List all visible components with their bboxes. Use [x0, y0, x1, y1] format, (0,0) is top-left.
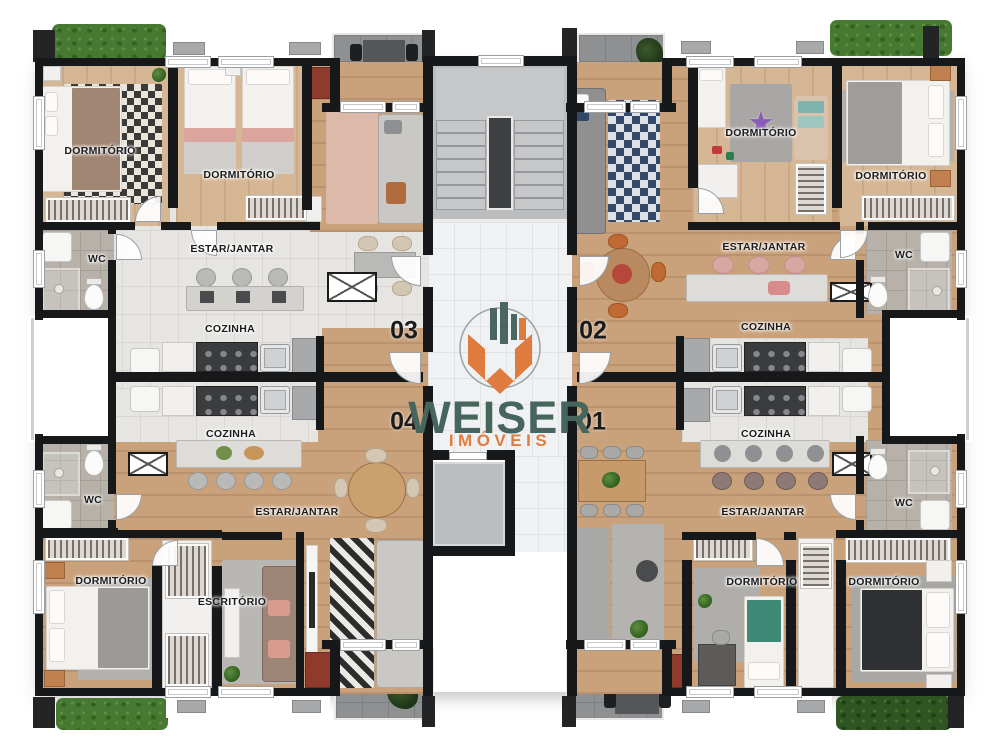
blanket: [862, 590, 922, 670]
window: [630, 639, 660, 651]
window: [392, 639, 420, 651]
cushion: [384, 120, 402, 134]
window: [584, 639, 626, 651]
room-label: WC: [84, 494, 102, 506]
kitchen-sink: [260, 386, 290, 414]
window: [478, 55, 524, 67]
nightstand: [44, 670, 65, 687]
wall: [882, 318, 890, 436]
window: [955, 250, 967, 288]
room-label: DORMITÓRIO: [848, 576, 919, 588]
blanket: [72, 88, 120, 190]
chair: [358, 236, 378, 251]
fridge: [682, 388, 710, 422]
stove: [196, 342, 258, 372]
pillow: [926, 632, 950, 668]
kitchen-island: [686, 274, 828, 302]
room-label: ESTAR/JANTAR: [722, 241, 805, 253]
wall: [423, 58, 433, 255]
stove: [196, 386, 258, 416]
stool: [188, 472, 208, 490]
red-cabinet: [305, 652, 333, 688]
laundry-sink: [842, 386, 872, 412]
unit-number-03: 03: [390, 317, 418, 346]
pillow: [926, 592, 950, 628]
window: [165, 686, 211, 698]
kitchen-cabinet: [162, 342, 194, 372]
room-label: DORMITÓRIO: [725, 127, 796, 139]
ac-unit: [796, 41, 824, 54]
wall: [302, 58, 312, 210]
wardrobe: [166, 634, 208, 686]
window: [584, 101, 626, 113]
chair: [603, 504, 621, 517]
wardrobe: [694, 538, 752, 560]
pillow: [928, 85, 944, 119]
toilet-tank: [86, 278, 102, 285]
ac-unit: [797, 700, 825, 713]
floor-plan: ★: [0, 0, 1000, 752]
kitchen-cabinet: [162, 386, 194, 416]
room-label: COZINHA: [205, 323, 255, 335]
window: [33, 470, 45, 508]
lobby-floor: [512, 456, 572, 552]
ac-unit: [681, 41, 711, 54]
window: [218, 686, 274, 698]
wall: [784, 532, 796, 540]
chair: [603, 446, 621, 459]
window: [955, 470, 967, 508]
stair-flight: [514, 120, 564, 210]
stool: [784, 256, 806, 274]
pillow: [45, 116, 58, 136]
stool: [748, 256, 770, 274]
railing: [31, 318, 34, 440]
room-label: ESCRITÓRIO: [198, 596, 266, 608]
wall: [108, 436, 116, 494]
cushion: [798, 116, 824, 128]
toilet-tank: [870, 448, 886, 455]
desk: [698, 644, 736, 686]
wardrobe: [46, 538, 128, 560]
shower-drain: [54, 468, 64, 478]
island-appliance: [200, 291, 214, 303]
window: [33, 560, 45, 614]
terrace-chair: [406, 44, 418, 61]
wall: [856, 436, 864, 494]
ac-unit: [173, 42, 205, 55]
room-label: WC: [895, 497, 913, 509]
wall: [688, 222, 840, 230]
stool: [776, 472, 796, 490]
room-label: WC: [88, 253, 106, 265]
chair: [608, 234, 628, 249]
window: [686, 56, 734, 68]
stool: [744, 472, 764, 490]
laundry-sink: [130, 348, 160, 374]
shower-drain: [930, 466, 940, 476]
toilet: [868, 282, 888, 308]
bathroom-sink: [920, 500, 950, 530]
sofa: [572, 528, 610, 650]
wall: [882, 310, 965, 318]
window: [955, 560, 967, 614]
chair: [626, 446, 644, 459]
nightstand: [44, 562, 65, 579]
wall: [868, 222, 962, 230]
stove: [744, 386, 806, 416]
duct-shaft: [327, 272, 377, 302]
toy: [712, 146, 722, 154]
stove: [744, 342, 806, 372]
stool: [712, 472, 732, 490]
wall: [316, 382, 324, 430]
room-label: ESTAR/JANTAR: [255, 506, 338, 518]
toilet: [84, 450, 104, 476]
room-label: DORMITÓRIO: [726, 576, 797, 588]
window: [754, 686, 802, 698]
kitchen-cabinet: [808, 386, 840, 416]
window: [340, 101, 386, 113]
kitchen-sink: [260, 344, 290, 372]
wall: [296, 532, 304, 694]
tv: [309, 572, 315, 628]
pillar: [422, 696, 435, 727]
chair: [365, 448, 387, 463]
wall: [35, 222, 135, 230]
pillar: [948, 694, 964, 728]
window: [955, 96, 967, 150]
duct-shaft: [830, 282, 872, 302]
chair: [392, 236, 412, 251]
cushion: [268, 600, 290, 616]
wardrobe: [846, 538, 950, 562]
room-label: DORMITÓRIO: [203, 169, 274, 181]
wall: [222, 532, 282, 540]
room-label: COZINHA: [206, 428, 256, 440]
window: [340, 639, 386, 651]
window: [33, 250, 45, 288]
wall: [688, 58, 698, 188]
blanket: [242, 128, 294, 142]
elevator-door: [449, 452, 487, 460]
chair: [712, 630, 730, 645]
window: [165, 56, 211, 68]
wall: [168, 58, 178, 208]
island-plate: [714, 445, 731, 462]
kitchen-island: [176, 440, 302, 468]
chair: [626, 504, 644, 517]
sofa: [376, 540, 428, 688]
stair-shaft: [487, 116, 513, 210]
bathroom-sink: [42, 232, 72, 262]
window: [33, 96, 45, 150]
ac-unit: [292, 700, 321, 713]
geometric-rug: [608, 100, 660, 222]
wall: [423, 287, 433, 352]
room-label: COZINHA: [741, 428, 791, 440]
cushion: [798, 101, 824, 113]
kitchen-sink: [712, 386, 742, 414]
ac-unit: [682, 700, 710, 713]
wall: [856, 260, 864, 318]
coffee-table: [636, 560, 658, 582]
wall: [836, 530, 962, 538]
blanket: [848, 82, 902, 164]
throw-blanket: [386, 182, 406, 204]
pillar: [562, 696, 576, 727]
shelf: [801, 544, 831, 588]
elevator-wall: [505, 450, 515, 556]
hedge: [52, 24, 166, 60]
island-appliance: [272, 291, 286, 303]
pillar: [923, 26, 939, 60]
chair: [651, 262, 666, 282]
wardrobe: [46, 198, 130, 222]
window: [686, 686, 734, 698]
wall: [682, 560, 692, 694]
toilet: [84, 284, 104, 310]
duct-shaft: [832, 452, 872, 476]
wall: [108, 222, 116, 234]
wall: [212, 566, 222, 694]
nightstand: [930, 64, 951, 81]
stool: [808, 472, 828, 490]
stool: [244, 472, 264, 490]
pillow: [748, 662, 780, 680]
ac-unit: [289, 42, 321, 55]
room-label: WC: [895, 249, 913, 261]
chair: [580, 504, 598, 517]
brand-tagline: IMÓVEIS: [400, 431, 600, 451]
wall: [882, 436, 965, 444]
light-well: [28, 316, 114, 442]
toilet-tank: [86, 444, 102, 451]
toy: [726, 152, 734, 160]
wall: [567, 58, 577, 255]
wardrobe: [246, 196, 306, 220]
railing: [966, 318, 969, 440]
wall: [676, 336, 684, 376]
wall: [316, 336, 324, 376]
wall: [161, 222, 191, 230]
island-appliance: [236, 291, 250, 303]
stool: [272, 472, 292, 490]
shower: [908, 450, 950, 494]
pillow: [49, 628, 65, 662]
window: [754, 56, 802, 68]
laundry-sink: [130, 386, 160, 412]
chair: [365, 518, 387, 533]
hedge: [56, 698, 168, 730]
shag-rug: [326, 112, 378, 224]
cushion: [268, 640, 290, 658]
round-dining-table: [348, 462, 406, 518]
fridge: [682, 338, 710, 373]
island-food: [216, 446, 232, 460]
wall: [676, 382, 684, 430]
blanket: [747, 600, 781, 642]
weiser-logo-mark-icon: [456, 298, 544, 394]
wall: [35, 436, 116, 444]
pillow: [246, 69, 290, 85]
bathroom-sink: [920, 232, 950, 262]
terrace-chair: [350, 44, 362, 61]
wall: [836, 560, 846, 694]
island-plate: [776, 445, 793, 462]
island-food: [244, 446, 264, 460]
stair-flight: [436, 120, 486, 210]
window: [392, 101, 420, 113]
island-food: [768, 281, 790, 295]
wall: [567, 287, 577, 352]
shower-drain: [54, 284, 64, 294]
nightstand: [926, 560, 952, 582]
kitchen-cabinet: [808, 342, 840, 372]
room-label: ESTAR/JANTAR: [721, 506, 804, 518]
wall: [112, 372, 423, 382]
stair-landing: [436, 68, 564, 120]
wall: [152, 566, 162, 694]
pillow: [928, 123, 944, 157]
bookshelf: [796, 164, 826, 214]
nightstand: [930, 170, 951, 187]
chair: [406, 478, 420, 498]
nightstand: [43, 66, 61, 81]
elevator-cab: [433, 462, 505, 546]
elevator-wall: [423, 450, 433, 556]
bathroom-sink: [42, 500, 72, 530]
wall: [35, 310, 116, 318]
unit-number-02: 02: [579, 317, 607, 346]
stool: [712, 256, 734, 274]
window: [218, 56, 274, 68]
island-plate: [807, 445, 824, 462]
stool: [196, 268, 216, 287]
ac-unit: [177, 700, 206, 713]
room-label: DORMITÓRIO: [64, 145, 135, 157]
duct-shaft: [128, 452, 168, 476]
pillow: [699, 69, 723, 81]
chair: [334, 478, 348, 498]
elevator-wall: [423, 546, 515, 556]
wall: [832, 58, 842, 208]
toilet-tank: [870, 276, 886, 283]
pillow: [45, 92, 58, 112]
window: [630, 101, 660, 113]
stool: [232, 268, 252, 287]
hedge: [836, 696, 952, 730]
table-decor: [612, 264, 632, 284]
room-label: DORMITÓRIO: [855, 170, 926, 182]
shower-drain: [932, 286, 942, 296]
blanket: [184, 128, 236, 142]
stool: [268, 268, 288, 287]
room-label: ESTAR/JANTAR: [190, 243, 273, 255]
wall: [35, 530, 222, 538]
shower: [908, 268, 950, 312]
pillow: [49, 590, 65, 624]
pillar: [33, 697, 55, 728]
wall: [682, 532, 756, 540]
room-label: COZINHA: [741, 321, 791, 333]
wall: [217, 222, 320, 230]
stool: [216, 472, 236, 490]
wardrobe: [862, 196, 954, 220]
laundry-sink: [842, 348, 872, 374]
kitchen-sink: [712, 344, 742, 372]
light-well: [886, 316, 972, 442]
blanket: [98, 588, 148, 668]
room-label: DORMITÓRIO: [75, 575, 146, 587]
chair: [608, 303, 628, 318]
island-plate: [745, 445, 762, 462]
toilet: [868, 454, 888, 480]
wall: [577, 372, 882, 382]
